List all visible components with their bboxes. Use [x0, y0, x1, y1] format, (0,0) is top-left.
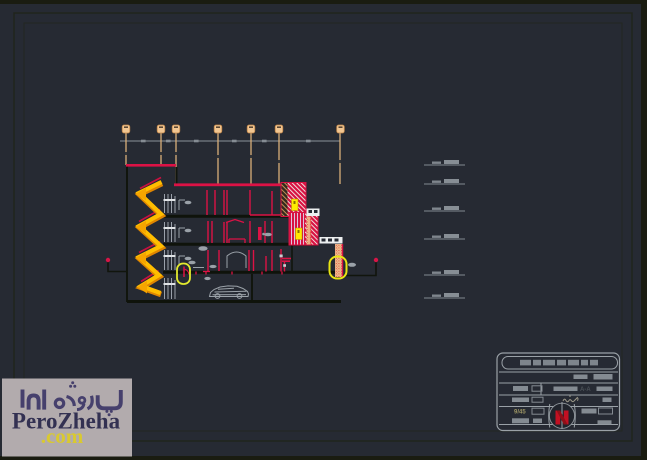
svg-text:A-A: A-A	[580, 387, 591, 393]
svg-text:9/45: 9/45	[514, 410, 526, 416]
svg-text:.com: .com	[41, 424, 84, 448]
